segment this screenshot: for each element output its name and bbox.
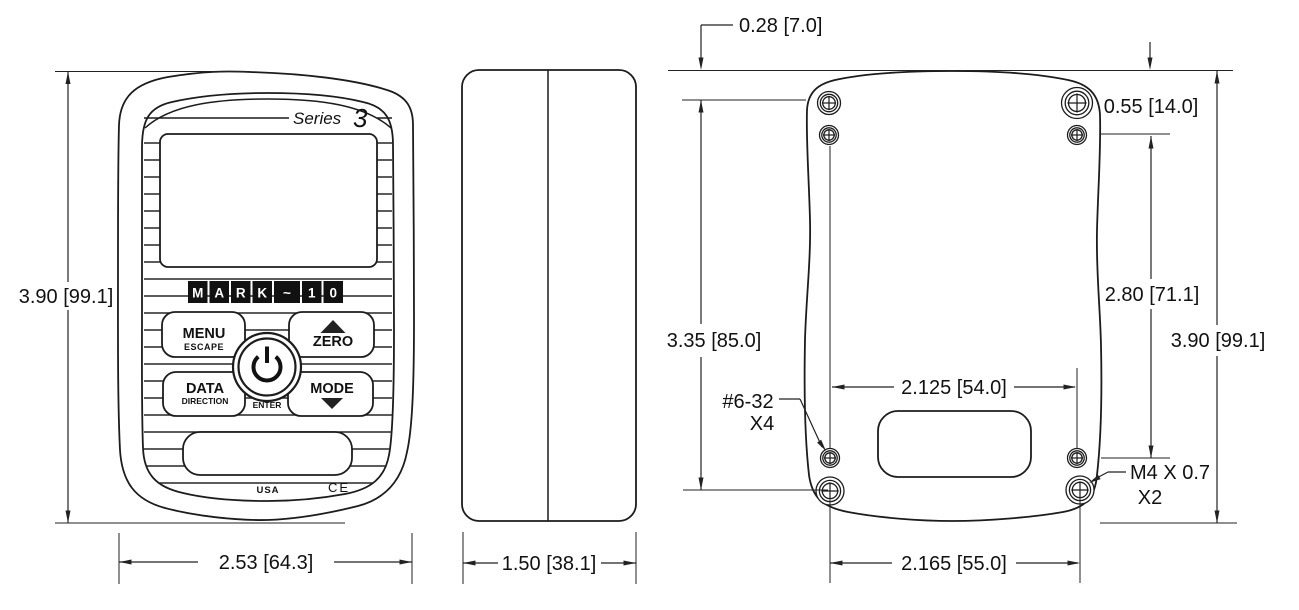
small-thread-qty: X4 <box>750 413 774 435</box>
dim-back-right-span: 2.80 [71.1] <box>1101 136 1199 458</box>
small-thread-spec: #6-32 <box>722 391 773 413</box>
origin-label: USA <box>256 485 279 496</box>
side-depth-value: 1.50 [38.1] <box>502 553 597 575</box>
display-screen <box>160 134 377 267</box>
screw-icon <box>1062 88 1093 119</box>
side-outline <box>462 70 636 521</box>
back-large-screw-spacing-value: 2.165 [55.0] <box>901 553 1007 575</box>
dim-back-top-offset: 0.28 [7.0] <box>668 15 1233 71</box>
side-view <box>462 70 636 521</box>
dim-back-left-span: 3.35 [85.0] <box>667 100 828 490</box>
screw-icon <box>1068 449 1087 468</box>
ce-mark-icon: CE <box>328 480 350 495</box>
logo-letter: M <box>192 286 203 301</box>
dim-back-second-screw-offset: 0.55 [14.0] <box>1100 42 1198 134</box>
direction-label: DIRECTION <box>182 396 229 406</box>
large-thread-qty: X2 <box>1138 487 1162 509</box>
back-left-span-value: 3.35 [85.0] <box>667 330 762 352</box>
back-cutout <box>878 411 1031 477</box>
logo-letter: 1 <box>308 286 316 301</box>
escape-label: ESCAPE <box>184 342 224 352</box>
series-number: 3 <box>353 103 368 133</box>
dim-front-width: 2.53 [64.3] <box>119 533 412 584</box>
back-small-screw-spacing-value: 2.125 [54.0] <box>901 377 1007 399</box>
logo-letter: R <box>236 286 246 301</box>
zero-label: ZERO <box>313 334 353 350</box>
mode-button[interactable]: MODE <box>288 372 373 416</box>
back-height-value: 3.90 [99.1] <box>1171 330 1266 352</box>
front-view: Series 3 MARK~10 MENU ESCAPE ZERO DATA D… <box>118 72 414 521</box>
series-label: Series <box>293 109 342 128</box>
back-second-screw-offset-value: 0.55 [14.0] <box>1104 96 1199 118</box>
screw-icon <box>820 126 839 145</box>
data-label: DATA <box>186 381 225 397</box>
technical-drawing: Series 3 MARK~10 MENU ESCAPE ZERO DATA D… <box>0 0 1299 610</box>
label-large-screws: M4 X 0.7 X2 <box>1088 462 1210 509</box>
back-top-offset-value: 0.28 [7.0] <box>739 15 822 37</box>
dim-side-depth: 1.50 [38.1] <box>463 532 636 584</box>
logo-letter: ~ <box>283 286 291 301</box>
drawing-canvas: Series 3 MARK~10 MENU ESCAPE ZERO DATA D… <box>0 0 1299 610</box>
zero-button[interactable]: ZERO <box>289 312 374 357</box>
logo-letter: K <box>257 286 267 301</box>
menu-escape-button[interactable]: MENU ESCAPE <box>162 312 245 357</box>
mark10-logo: MARK~10 <box>188 281 343 303</box>
logo-letter: A <box>214 286 224 301</box>
menu-label: MENU <box>183 326 226 342</box>
screw-icon <box>818 92 841 115</box>
large-thread-spec: M4 X 0.7 <box>1130 462 1210 484</box>
screw-icon <box>1068 126 1087 145</box>
back-view <box>805 71 1102 521</box>
enter-label: ENTER <box>253 400 282 410</box>
data-direction-button[interactable]: DATA DIRECTION <box>163 372 245 416</box>
front-height-value: 3.90 [99.1] <box>19 286 114 308</box>
screw-icon <box>821 449 840 468</box>
bottom-recess <box>183 432 352 475</box>
front-width-value: 2.53 [64.3] <box>219 552 314 574</box>
mode-label: MODE <box>310 381 354 397</box>
logo-letter: 0 <box>329 286 337 301</box>
back-right-span-value: 2.80 [71.1] <box>1105 284 1200 306</box>
